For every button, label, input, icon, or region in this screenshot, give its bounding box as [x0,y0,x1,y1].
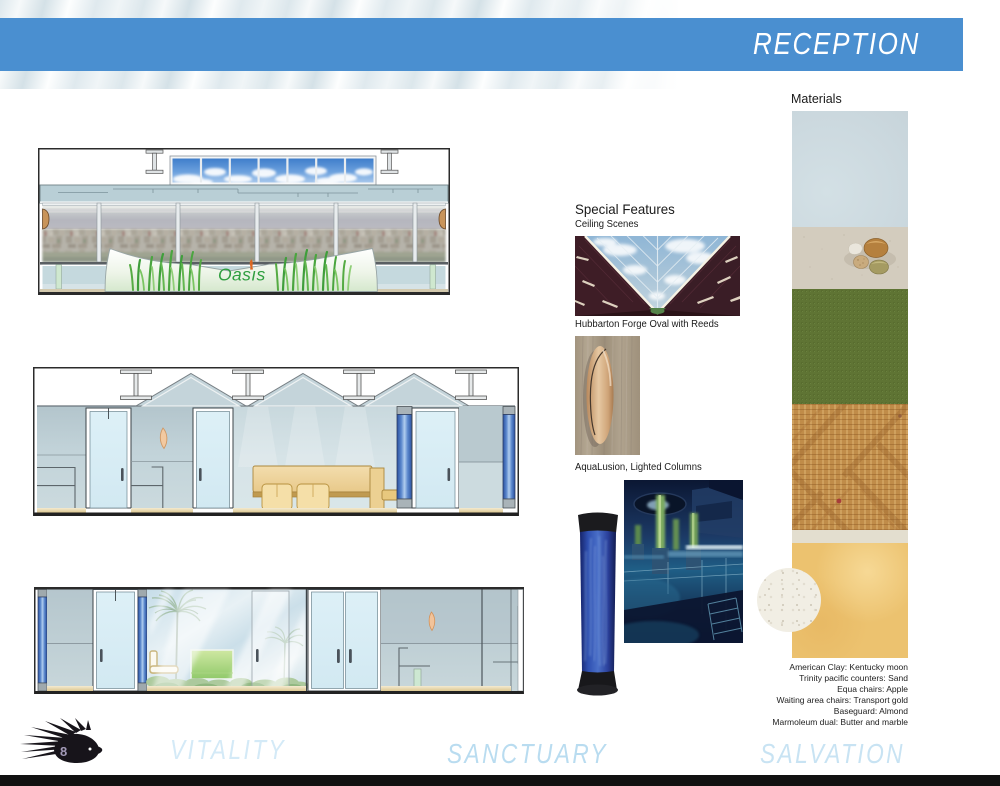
svg-text:8: 8 [60,744,67,759]
svg-text:Oasıs: Oasıs [218,265,266,285]
